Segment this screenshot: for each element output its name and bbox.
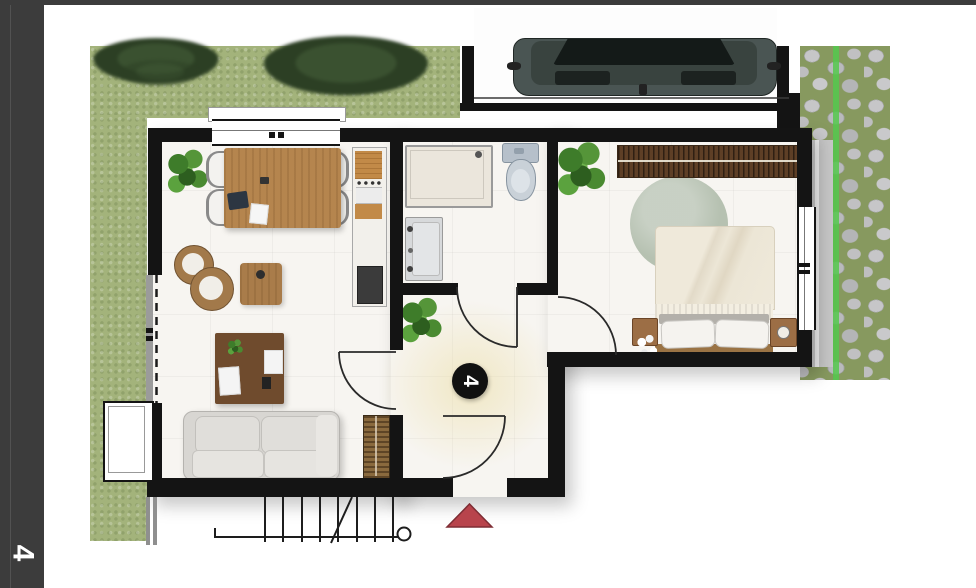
sheet-number-text: 4	[5, 545, 39, 562]
kitchenette-wood-top	[355, 151, 382, 179]
toilet-seat	[511, 169, 530, 193]
desk-paper-1	[218, 366, 241, 395]
wall-bedroom-right-upper	[797, 128, 812, 207]
nightstand-right	[770, 318, 797, 347]
wall-hall-living-lower	[390, 415, 403, 478]
toilet	[502, 143, 539, 201]
sidebar-inner-line	[10, 5, 11, 588]
shrub-shadow	[120, 60, 200, 86]
washbasin	[405, 217, 443, 281]
wall-bath-living-separator	[390, 142, 403, 283]
paper-sheet	[249, 203, 269, 225]
desk-paper-2	[264, 350, 283, 374]
bedroom-window	[797, 207, 816, 330]
left-sidebar: 4	[0, 0, 44, 588]
wall-bedroom-bottom	[547, 352, 812, 367]
kitchenette-column	[352, 147, 387, 307]
fence-line-2	[153, 497, 157, 545]
toilet-flush-button	[514, 148, 524, 154]
living-window-midline	[212, 130, 340, 131]
wall-bottom-hall	[507, 478, 565, 497]
entrance-triangle-marker	[447, 504, 492, 527]
shrub-right	[262, 36, 430, 96]
kitchenette-wood-mid	[355, 204, 382, 219]
shower-drain	[475, 151, 482, 158]
car-antenna	[639, 84, 647, 95]
unit-number-marker: 4	[452, 363, 488, 399]
top-frame-bar	[0, 0, 976, 5]
bedroom-window-latch	[799, 263, 810, 267]
dining-table	[224, 148, 341, 228]
unit-number-text: 4	[458, 375, 482, 387]
kitchenette-knobs	[356, 181, 382, 185]
radiator	[363, 415, 390, 479]
lightwell-window	[103, 401, 154, 482]
car-mirror-right	[767, 62, 781, 70]
side-table	[240, 263, 282, 305]
coffee-cup	[256, 270, 265, 279]
nightstand-lamp	[777, 326, 790, 339]
shower-inner-line	[410, 150, 484, 199]
living-window	[212, 119, 340, 146]
radiator-center-line	[375, 416, 377, 476]
wall-left-upper	[148, 128, 162, 275]
car-mirror-left	[507, 62, 521, 70]
shower-tray	[405, 145, 493, 208]
bed-blanket	[655, 226, 775, 310]
lounge-stool-2	[190, 267, 234, 311]
phone	[260, 177, 269, 184]
sheet-number-label: 4	[0, 526, 44, 580]
wall-top-main	[340, 128, 812, 142]
desk-plant	[227, 339, 244, 356]
living-room-plant	[166, 148, 210, 198]
basin-handle	[408, 248, 413, 253]
bedroom-window-midline	[804, 207, 805, 330]
bedroom-plant	[556, 140, 608, 202]
hallway-plant	[400, 296, 444, 348]
exterior-stairs	[215, 497, 411, 543]
basin-faucet-bottom	[407, 266, 413, 272]
car	[513, 36, 775, 96]
car-rear-window-left	[555, 71, 610, 85]
wall-bath-bedroom-separator	[547, 142, 558, 295]
sofa-back-cushion-left	[195, 416, 260, 454]
sliding-door-latch-2	[146, 336, 153, 341]
lightwell-inner-line	[108, 406, 145, 473]
laptop	[227, 191, 249, 211]
double-bed	[655, 226, 773, 354]
wall-bottom-living	[148, 478, 453, 497]
fence-line-1	[146, 497, 150, 545]
desk-item	[262, 377, 271, 389]
headboard-slat-panel	[617, 145, 802, 178]
bed-pillow-left	[661, 319, 716, 349]
wall-hall-right	[548, 365, 565, 478]
basin-faucet-top	[407, 226, 413, 232]
kitchenette-shelves	[356, 187, 382, 204]
headboard-rail-line	[618, 160, 799, 162]
sliding-door-latch-1	[146, 328, 153, 333]
basin-inner	[412, 222, 440, 276]
wall-hall-living-upper	[390, 283, 403, 350]
path-green-line	[833, 46, 839, 380]
living-window-latch-1	[269, 132, 275, 138]
living-window-latch-2	[278, 132, 284, 138]
bed-pillow-right	[715, 319, 770, 349]
sofa	[183, 411, 340, 481]
parking-wall-left	[462, 46, 474, 108]
bedroom-window-latch-2	[799, 270, 810, 274]
floor-plan-sheet: 4	[0, 0, 976, 588]
sofa-seat-cushion-left	[192, 450, 264, 478]
wall-bath-bottom-right	[517, 283, 547, 295]
car-windshield	[553, 39, 735, 65]
kitchenette-dark-unit	[357, 266, 383, 304]
sofa-chaise	[316, 415, 337, 476]
desk	[215, 333, 284, 404]
car-rear-window-right	[681, 71, 736, 85]
wall-bedroom-right-lower	[797, 330, 812, 367]
stool-cushion-2	[199, 276, 223, 300]
boundary-wall-top	[460, 103, 810, 111]
